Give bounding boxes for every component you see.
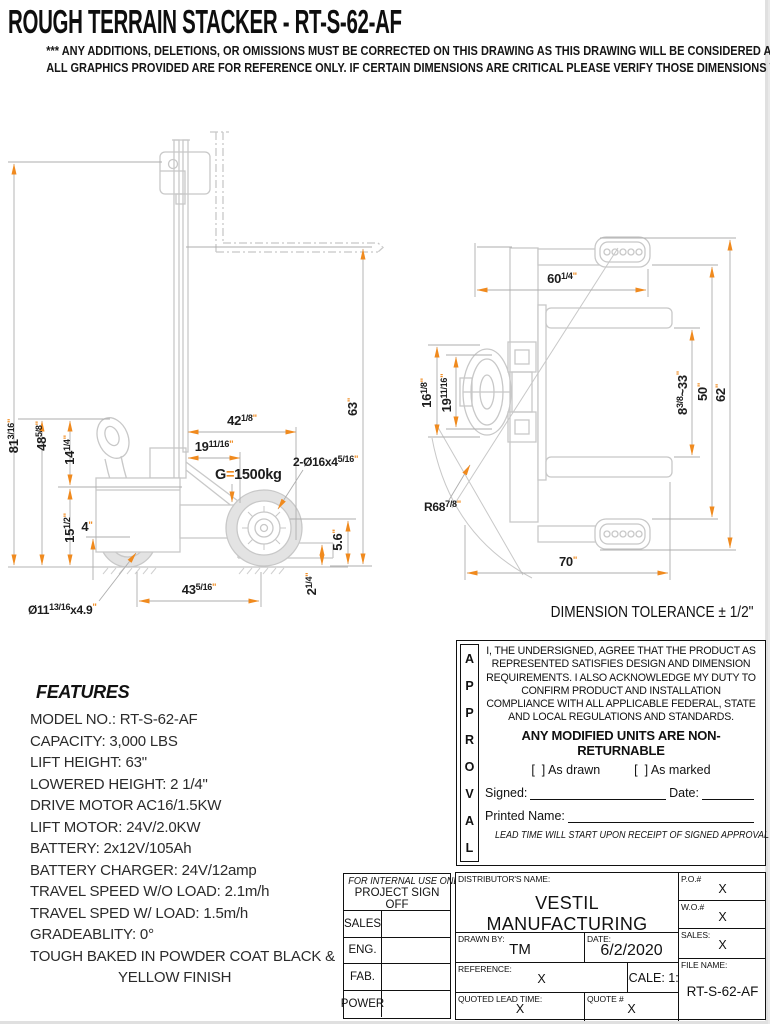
dim-overall-height: 813/16" [6,419,21,453]
signed-label: Signed: [485,786,527,800]
po-value: X [679,882,766,896]
title-block: DISTRIBUTOR'S NAME: VESTIL MANUFACTURING… [455,872,766,1020]
tolerance-note: DIMENSION TOLERANCE ± 1/2" [550,604,753,622]
dim-15-half: 151/2" [62,513,77,543]
page-title: ROUGH TERRAIN STACKER - RT-S-62-AF [8,3,402,41]
signoff-row-sales: SALES [344,911,450,938]
label-drive-wheel-size: Ø1113/16x4.9" [28,602,97,617]
feature-lift-motor: LIFT MOTOR: 24V/2.0KW [30,817,335,839]
dim-overall-length-70: 70" [559,554,577,569]
disclaimer-line-2: ALL GRAPHICS PROVIDED ARE FOR REFERENCE … [46,61,724,75]
signed-row: Signed: Date: [481,786,761,800]
sales-cell: SALES: X [679,929,766,959]
checkbox-as-marked[interactable]: [ ] As marked [634,763,710,777]
printed-name-label: Printed Name: [485,809,565,823]
feature-speed-unloaded: TRAVEL SPEED W/O LOAD: 2.1m/h [30,881,335,903]
feature-capacity: CAPACITY: 3,000 LBS [30,731,335,753]
lead-time-note: LEAD TIME WILL START UPON RECEIPT OF SIG… [495,830,747,841]
label-load-capacity: G=1500kg [215,467,282,483]
dim-lift-height: 63" [345,398,360,416]
dim-19-11-16: 1911/16" [195,439,234,454]
approval-checkboxes: [ ] As drawn [ ] As marked [481,763,761,777]
approval-block: A P P R O V A L I, THE UNDERSIGNED, AGRE… [456,640,766,866]
technical-drawing: 813/16" 485/8" 141/4" 151/2" 4" 63" 5.6"… [0,0,770,640]
quote-number-value: X [585,1002,678,1016]
quoted-lead-time-cell: QUOTED LEAD TIME: X [456,993,585,1021]
top-view-dim-lines [428,238,736,580]
side-view-dim-lines [8,162,372,607]
wo-cell: W.O.# X [679,901,766,929]
printed-name-field[interactable] [568,809,754,823]
top-view-linework [432,237,672,578]
signoff-row-fab: FAB. [344,964,450,991]
approval-vertical-label: A P P R O V A L [460,644,479,862]
printed-name-row: Printed Name: [481,809,761,823]
feature-gradeability: GRADEABLITY: 0° [30,924,335,946]
approval-statement: I, THE UNDERSIGNED, AGREE THAT THE PRODU… [481,645,761,725]
label-turning-radius: R687/8" [424,499,461,514]
signoff-row-eng: ENG. [344,938,450,965]
feature-speed-loaded: TRAVEL SPED W/ LOAD: 1.5m/h [30,903,335,925]
checkbox-as-drawn[interactable]: [ ] As drawn [531,763,600,777]
signoff-row-power: POWER [344,991,450,1018]
non-returnable-warning: ANY MODIFIED UNITS ARE NON-RETURNABLE [481,728,761,758]
reference-value: X [456,972,627,986]
signoff-eng-field[interactable] [382,938,450,964]
dim-handle-height: 485/8" [34,421,49,451]
signoff-power-field[interactable] [382,991,450,1018]
dim-14-quarter: 141/4" [62,435,77,465]
wo-value: X [679,910,766,924]
drawn-by-cell: DRAWN BY: TM [456,933,585,963]
feature-finish-1: TOUGH BAKED IN POWDER COAT BLACK & [30,946,335,968]
label-roller-size: 2-Ø16x45/16" [293,454,358,469]
drawing-sheet: ROUGH TERRAIN STACKER - RT-S-62-AF *** A… [0,0,768,1024]
filename-value: RT-S-62-AF [679,984,766,999]
po-cell: P.O.# X [679,873,766,901]
signoff-header: FOR INTERNAL USE ONLY PROJECT SIGN OFF [344,874,450,911]
dim-fork-length: 421/8" [227,413,257,428]
approval-content: I, THE UNDERSIGNED, AGREE THAT THE PRODU… [481,645,761,863]
reference-cell: REFERENCE: X [456,963,628,993]
feature-charger: BATTERY CHARGER: 24V/12amp [30,860,335,882]
features-heading: FEATURES [36,682,335,703]
features-section: FEATURES MODEL NO.: RT-S-62-AF CAPACITY:… [30,682,335,989]
dim-lowered-height: 21/4" [304,573,319,596]
date-label: Date: [669,786,699,800]
disclaimer-line-1: *** ANY ADDITIONS, DELETIONS, OR OMISSIO… [46,44,724,58]
dim-wheelbase: 435/16" [182,582,216,597]
dim-width-62: 62" [713,384,728,402]
dim-16-eighth: 161/8" [419,378,434,408]
signoff-fab-field[interactable] [382,964,450,990]
feature-battery: BATTERY: 2x12V/105Ah [30,838,335,860]
dim-19-11-16-top: 1911/16" [439,374,454,413]
feature-model: MODEL NO.: RT-S-62-AF [30,709,335,731]
distributor-name: VESTIL MANUFACTURING [456,893,678,933]
date-value: 6/2/2020 [585,942,678,960]
dim-5-6: 5.6" [330,529,345,550]
sales-value: X [679,938,766,952]
distributor-cell: DISTRIBUTOR'S NAME: VESTIL MANUFACTURING [456,873,679,933]
side-view-linework [8,132,383,574]
dim-ground-clearance: 4" [81,519,92,534]
signature-field[interactable] [530,786,666,800]
dim-fork-spread: 83/8~33" [675,371,690,415]
date-cell: DATE: 6/2/2020 [585,933,679,963]
dim-overall-length-60: 601/4" [547,271,577,286]
scale-cell: SCALE: 1:2 [628,963,679,993]
filename-cell: FILE NAME: RT-S-62-AF [679,959,766,1019]
feature-finish-2: YELLOW FINISH [30,967,335,989]
internal-signoff-table: FOR INTERNAL USE ONLY PROJECT SIGN OFF S… [343,873,451,1019]
dim-width-50: 50" [695,383,710,401]
feature-lift-height: LIFT HEIGHT: 63" [30,752,335,774]
date-field[interactable] [702,786,754,800]
quoted-lead-time-value: X [456,1002,584,1016]
signoff-sales-field[interactable] [382,911,450,937]
feature-lowered-height: LOWERED HEIGHT: 2 1/4" [30,774,335,796]
feature-drive-motor: DRIVE MOTOR AC16/1.5KW [30,795,335,817]
quote-number-cell: QUOTE # X [585,993,679,1021]
